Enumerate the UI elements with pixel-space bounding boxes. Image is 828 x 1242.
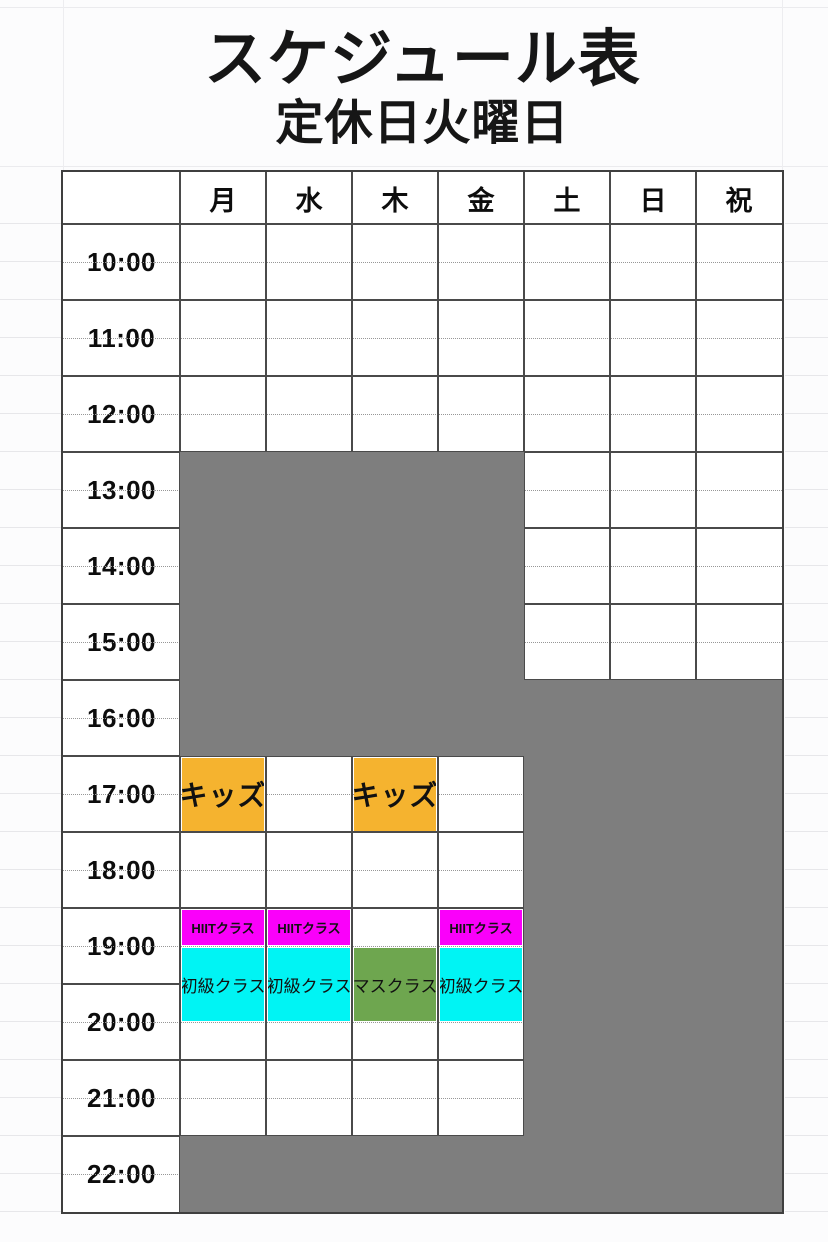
header-day-2: 水: [266, 172, 352, 224]
event-cell-初級クラス-月: 初級クラス: [182, 948, 264, 1021]
half-hour-divider: [63, 262, 782, 263]
header-day-7: 祝: [696, 172, 782, 224]
event-cell-HIITクラス-水: HIITクラス: [268, 910, 350, 945]
half-hour-divider: [63, 566, 180, 567]
half-hour-divider: [524, 566, 782, 567]
hour-divider: [63, 223, 782, 225]
event-cell-HIITクラス-月: HIITクラス: [182, 910, 264, 945]
half-hour-divider: [63, 414, 782, 415]
event-cell-HIITクラス-金: HIITクラス: [440, 910, 522, 945]
event-cell-初級クラス-金: 初級クラス: [440, 948, 522, 1021]
column-divider: [695, 172, 697, 680]
hour-divider: [63, 299, 782, 301]
margin-gridline: [782, 0, 783, 173]
half-hour-divider: [524, 490, 782, 491]
closed-block-2: [524, 680, 782, 1212]
event-cell-マスクラス-木: マスクラス: [354, 948, 436, 1021]
header-day-1: 月: [180, 172, 266, 224]
column-divider: [265, 172, 267, 452]
hour-divider: [63, 527, 180, 529]
margin-gridline: [0, 7, 828, 8]
event-cell-キッズ-月: キッズ: [182, 758, 264, 831]
half-hour-divider: [63, 1022, 524, 1023]
column-divider: [265, 756, 267, 1136]
left-margin-gridlines: [0, 186, 62, 1242]
header-day-4: 金: [438, 172, 524, 224]
header-day-6: 日: [610, 172, 696, 224]
hour-divider: [63, 983, 180, 985]
closed-day-note: 定休日火曜日: [63, 97, 782, 151]
column-divider: [351, 756, 353, 1136]
event-cell-キッズ-木: キッズ: [354, 758, 436, 831]
column-divider: [437, 172, 439, 452]
closed-block-1: [180, 452, 524, 756]
header-day-3: 木: [352, 172, 438, 224]
hour-divider: [63, 831, 524, 833]
half-hour-divider: [63, 490, 180, 491]
right-margin-gridlines: [785, 186, 828, 1242]
half-hour-divider: [63, 1098, 524, 1099]
half-hour-divider: [63, 338, 782, 339]
schedule-page: スケジュール表 定休日火曜日 月水木金土日祝10:0011:0012:0013:…: [0, 0, 828, 1242]
column-divider: [351, 172, 353, 452]
hour-divider: [63, 679, 180, 681]
column-divider: [437, 756, 439, 1136]
schedule-table: 月水木金土日祝10:0011:0012:0013:0014:0015:0016:…: [63, 172, 782, 1212]
half-hour-divider: [63, 642, 180, 643]
hour-divider: [63, 1059, 524, 1061]
half-hour-divider: [63, 794, 524, 795]
page-title: スケジュール表: [63, 22, 782, 98]
hour-divider: [63, 603, 180, 605]
hour-divider: [63, 375, 782, 377]
event-cell-初級クラス-水: 初級クラス: [268, 948, 350, 1021]
half-hour-divider: [63, 718, 180, 719]
closed-block-3: [180, 1136, 524, 1212]
margin-gridline: [0, 166, 828, 167]
header-day-5: 土: [524, 172, 610, 224]
hour-divider: [524, 527, 782, 529]
half-hour-divider: [63, 1174, 180, 1175]
half-hour-divider: [524, 642, 782, 643]
column-divider: [609, 172, 611, 680]
half-hour-divider: [63, 870, 524, 871]
hour-divider: [524, 603, 782, 605]
